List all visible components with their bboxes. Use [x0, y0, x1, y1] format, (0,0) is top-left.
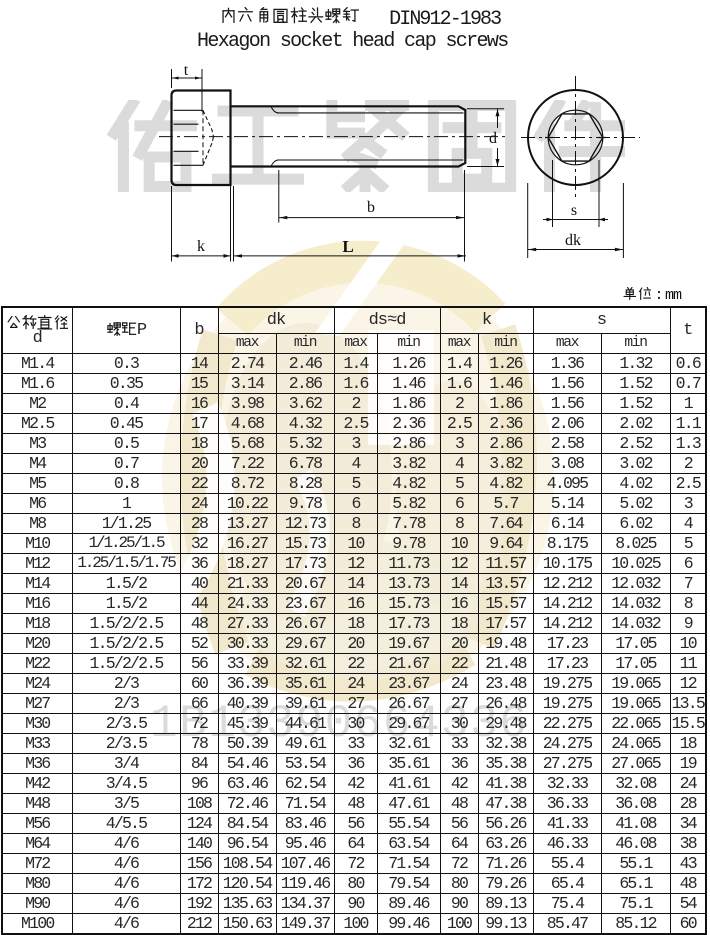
svg-text:dk: dk: [565, 232, 581, 249]
svg-text:L: L: [342, 237, 353, 256]
svg-text:d: d: [489, 130, 497, 147]
svg-text:b: b: [367, 199, 375, 216]
svg-text:k: k: [197, 238, 205, 255]
svg-text:s: s: [571, 202, 577, 219]
svg-text:t: t: [184, 62, 189, 79]
